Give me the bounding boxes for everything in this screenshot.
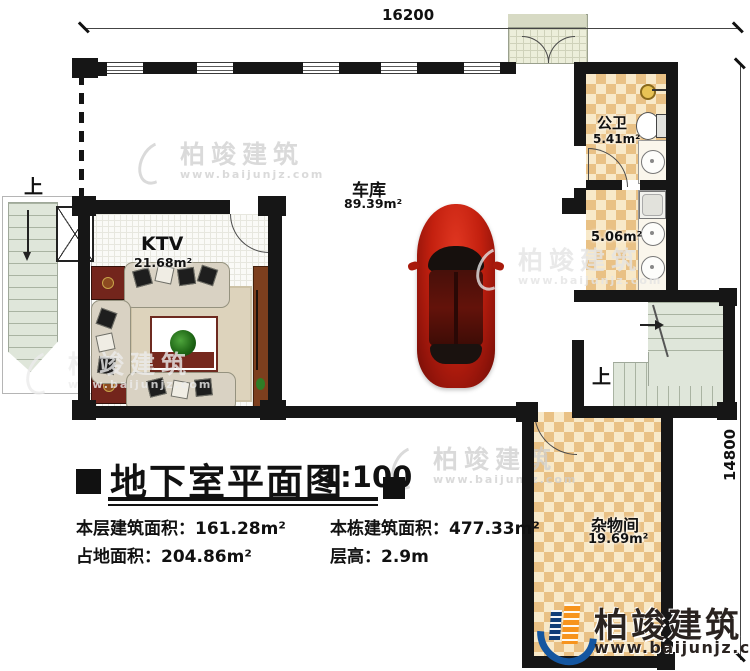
washroom-area: 5.06m²: [591, 230, 642, 245]
wall: [640, 180, 668, 190]
window: [107, 62, 143, 74]
title-square-right: [383, 477, 405, 499]
stat-total-area: 本栋建筑面积：477.33m²: [330, 514, 540, 539]
plant: [170, 330, 196, 356]
window: [381, 62, 417, 74]
wall-post: [72, 58, 98, 78]
stat-floor-height: 层高：2.9m: [330, 542, 429, 567]
watermark-name: 柏竣建筑: [180, 142, 324, 167]
sink: [641, 256, 665, 280]
storage-area: 19.69m²: [588, 532, 648, 547]
stair-arrow-right: [655, 320, 664, 330]
window: [197, 62, 233, 74]
wall: [78, 200, 90, 418]
wall: [339, 62, 381, 74]
sofa-pillow: [171, 380, 191, 400]
dimension-right-label: 14800: [721, 420, 739, 490]
stat-value: 2.9m: [381, 547, 429, 567]
watermark-url: www.baijunjz.com: [180, 167, 324, 184]
left-stairs: [8, 202, 58, 372]
entrance-step: [508, 14, 586, 28]
floor-plan-canvas: 16200 14800 上 上: [0, 0, 750, 671]
stat-label: 层高：: [330, 547, 381, 567]
stair-arrow-down: [23, 252, 31, 261]
sofa-pillow: [194, 378, 213, 397]
stair-direction-line: [640, 324, 656, 326]
wall-post: [719, 288, 737, 306]
wall: [723, 290, 735, 418]
wall: [500, 62, 516, 74]
window: [303, 62, 339, 74]
bathroom-area: 5.41m²: [593, 132, 640, 146]
window: [464, 62, 500, 74]
wall-post: [516, 402, 538, 422]
wall: [143, 62, 197, 74]
wall: [417, 62, 464, 74]
wall: [78, 406, 534, 418]
wall-dashed: [79, 74, 84, 200]
wall: [576, 62, 678, 74]
stat-value: 204.86m²: [161, 547, 252, 567]
stat-label: 占地面积：: [76, 547, 161, 567]
watermark-logo-icon: [131, 135, 181, 191]
bathroom-label: 公卫: [597, 112, 627, 133]
stat-land-area: 占地面积：204.86m²: [76, 542, 252, 567]
corner-cabinet: [91, 266, 125, 300]
sofa-pillow: [95, 332, 115, 352]
wall-post: [72, 196, 96, 216]
wall: [233, 62, 303, 74]
stat-label: 本层建筑面积：: [76, 519, 195, 539]
wall: [574, 290, 735, 302]
wall-post: [260, 400, 286, 420]
stat-value: 161.28m²: [195, 519, 286, 539]
title-underline: [108, 497, 378, 501]
watermark: 柏竣建筑 www.baijunjz.com: [140, 140, 324, 186]
logo-building-icon: [549, 610, 562, 640]
car-console: [454, 272, 458, 344]
stat-value: 477.33m²: [449, 519, 540, 539]
shower-head-icon: [640, 84, 656, 100]
dimension-top-label: 16200: [382, 6, 434, 24]
brand-logo: 柏竣建筑 www.baijunjz.com: [536, 596, 748, 664]
wall-post: [258, 196, 286, 216]
car-rear-window: [430, 344, 482, 364]
logo-building-icon-orange: [562, 604, 581, 644]
wall: [574, 62, 586, 146]
stat-floor-area: 本层建筑面积：161.28m²: [76, 514, 286, 539]
stairs-up-label-right: 上: [592, 362, 611, 389]
stat-label: 本栋建筑面积：: [330, 519, 449, 539]
logo-url: www.baijunjz.com: [594, 638, 750, 657]
ktv-label: KTV: [141, 233, 183, 255]
ktv-area: 21.68m²: [134, 255, 192, 270]
wall-post: [717, 402, 737, 420]
wall: [586, 180, 622, 190]
wall-post: [72, 400, 96, 420]
garage-area: 89.39m²: [344, 196, 402, 211]
sink: [641, 222, 665, 246]
sink: [641, 150, 665, 174]
sofa-pillow: [97, 356, 116, 375]
title-underline-thin: [108, 504, 378, 506]
wall: [78, 200, 230, 214]
shower-box-inner: [642, 194, 663, 216]
wall: [576, 406, 735, 418]
title-square-left: [76, 469, 101, 494]
right-stairs-treads-lower: [613, 386, 723, 406]
stair-direction-line: [27, 210, 29, 252]
dimension-line-top: [83, 28, 738, 29]
wall: [268, 200, 282, 418]
wall-post: [562, 198, 586, 214]
dimension-line-right: [740, 63, 741, 660]
stairs-up-label-left: 上: [24, 172, 43, 199]
tv-screen: [256, 290, 258, 370]
small-plant: [256, 378, 265, 390]
